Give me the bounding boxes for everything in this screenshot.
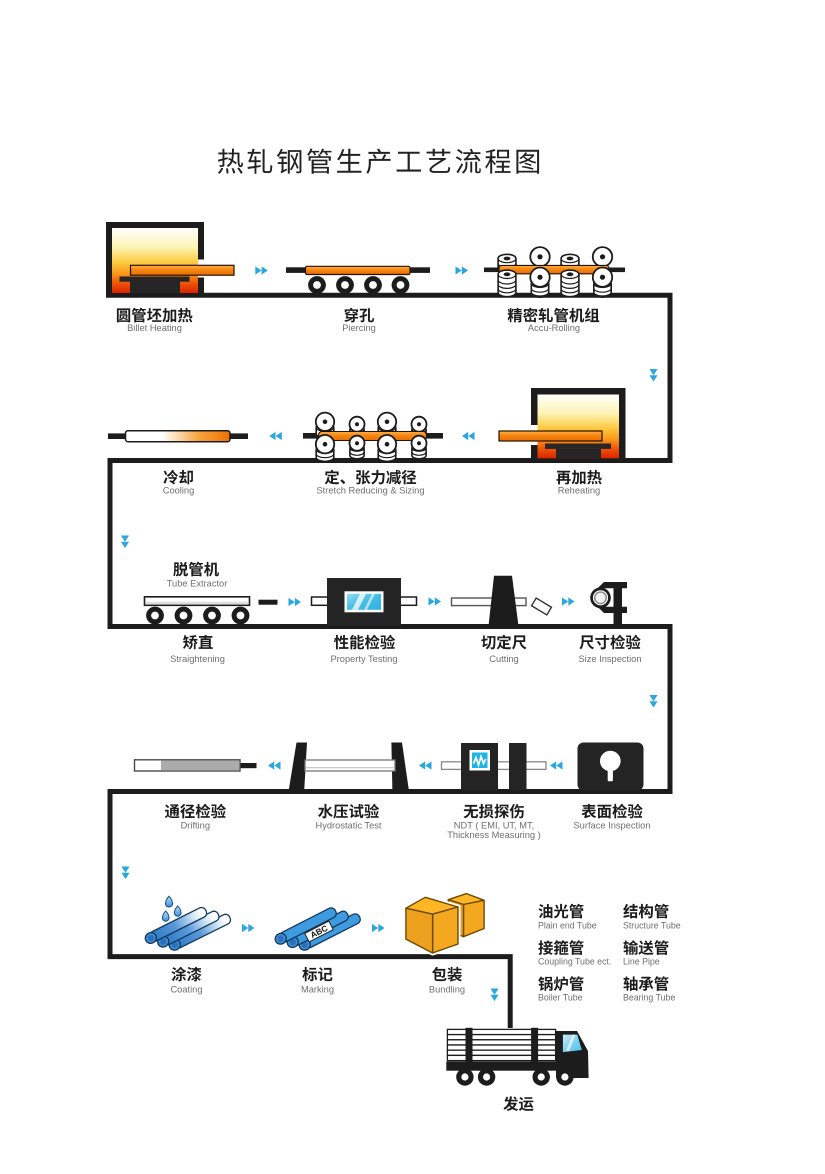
- svg-text:Drifting: Drifting: [181, 821, 210, 831]
- svg-text:Cutting: Cutting: [489, 654, 518, 664]
- svg-text:Hydrostatic Test: Hydrostatic Test: [316, 821, 382, 831]
- svg-text:Coating: Coating: [170, 985, 202, 995]
- svg-text:Structure Tube: Structure Tube: [623, 921, 681, 931]
- svg-text:Stretch Reducing & Sizing: Stretch Reducing & Sizing: [316, 486, 424, 496]
- svg-text:Plain end Tube: Plain end Tube: [538, 921, 597, 931]
- svg-text:Thickness Measuring ): Thickness Measuring ): [447, 830, 541, 840]
- svg-text:Line Pipe: Line Pipe: [623, 957, 660, 967]
- svg-text:Surface Inspection: Surface Inspection: [573, 821, 650, 831]
- svg-text:Size Inspection: Size Inspection: [578, 654, 641, 664]
- svg-text:Bundling: Bundling: [429, 985, 465, 995]
- svg-text:Accu-Rolling: Accu-Rolling: [528, 323, 580, 333]
- svg-text:Piercing: Piercing: [342, 323, 376, 333]
- svg-text:Tube Extractor: Tube Extractor: [167, 579, 228, 589]
- svg-text:Cooling: Cooling: [163, 486, 195, 496]
- svg-text:Bearing Tube: Bearing Tube: [623, 993, 675, 1003]
- svg-text:Marking: Marking: [301, 985, 334, 995]
- svg-text:Property Testing: Property Testing: [330, 654, 397, 664]
- svg-text:Reheating: Reheating: [558, 486, 600, 496]
- svg-text:Straightening: Straightening: [170, 654, 225, 664]
- svg-text:Billet Heating: Billet Heating: [127, 323, 182, 333]
- svg-text:Coupling Tube ect.: Coupling Tube ect.: [538, 957, 611, 967]
- svg-text:NDT ( EMI, UT, MT,: NDT ( EMI, UT, MT,: [454, 821, 534, 831]
- svg-text:Boiler Tube: Boiler Tube: [538, 993, 583, 1003]
